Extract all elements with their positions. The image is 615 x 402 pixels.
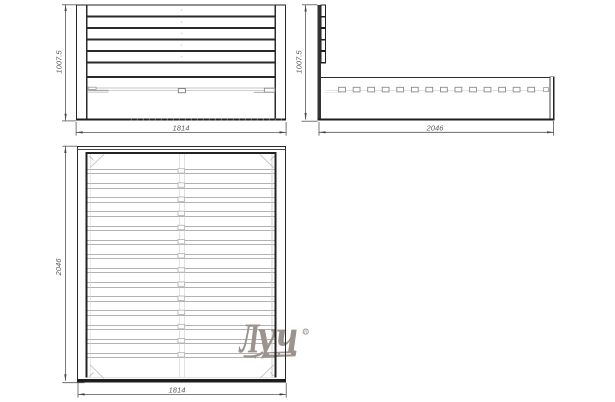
- svg-text:2046: 2046: [426, 123, 445, 132]
- svg-text:2046: 2046: [54, 258, 63, 277]
- svg-text:1007.5: 1007.5: [294, 50, 303, 74]
- svg-text:1007.5: 1007.5: [55, 50, 64, 74]
- svg-text:1814: 1814: [173, 124, 190, 133]
- svg-text:R: R: [304, 330, 307, 335]
- svg-text:1814: 1814: [169, 385, 186, 394]
